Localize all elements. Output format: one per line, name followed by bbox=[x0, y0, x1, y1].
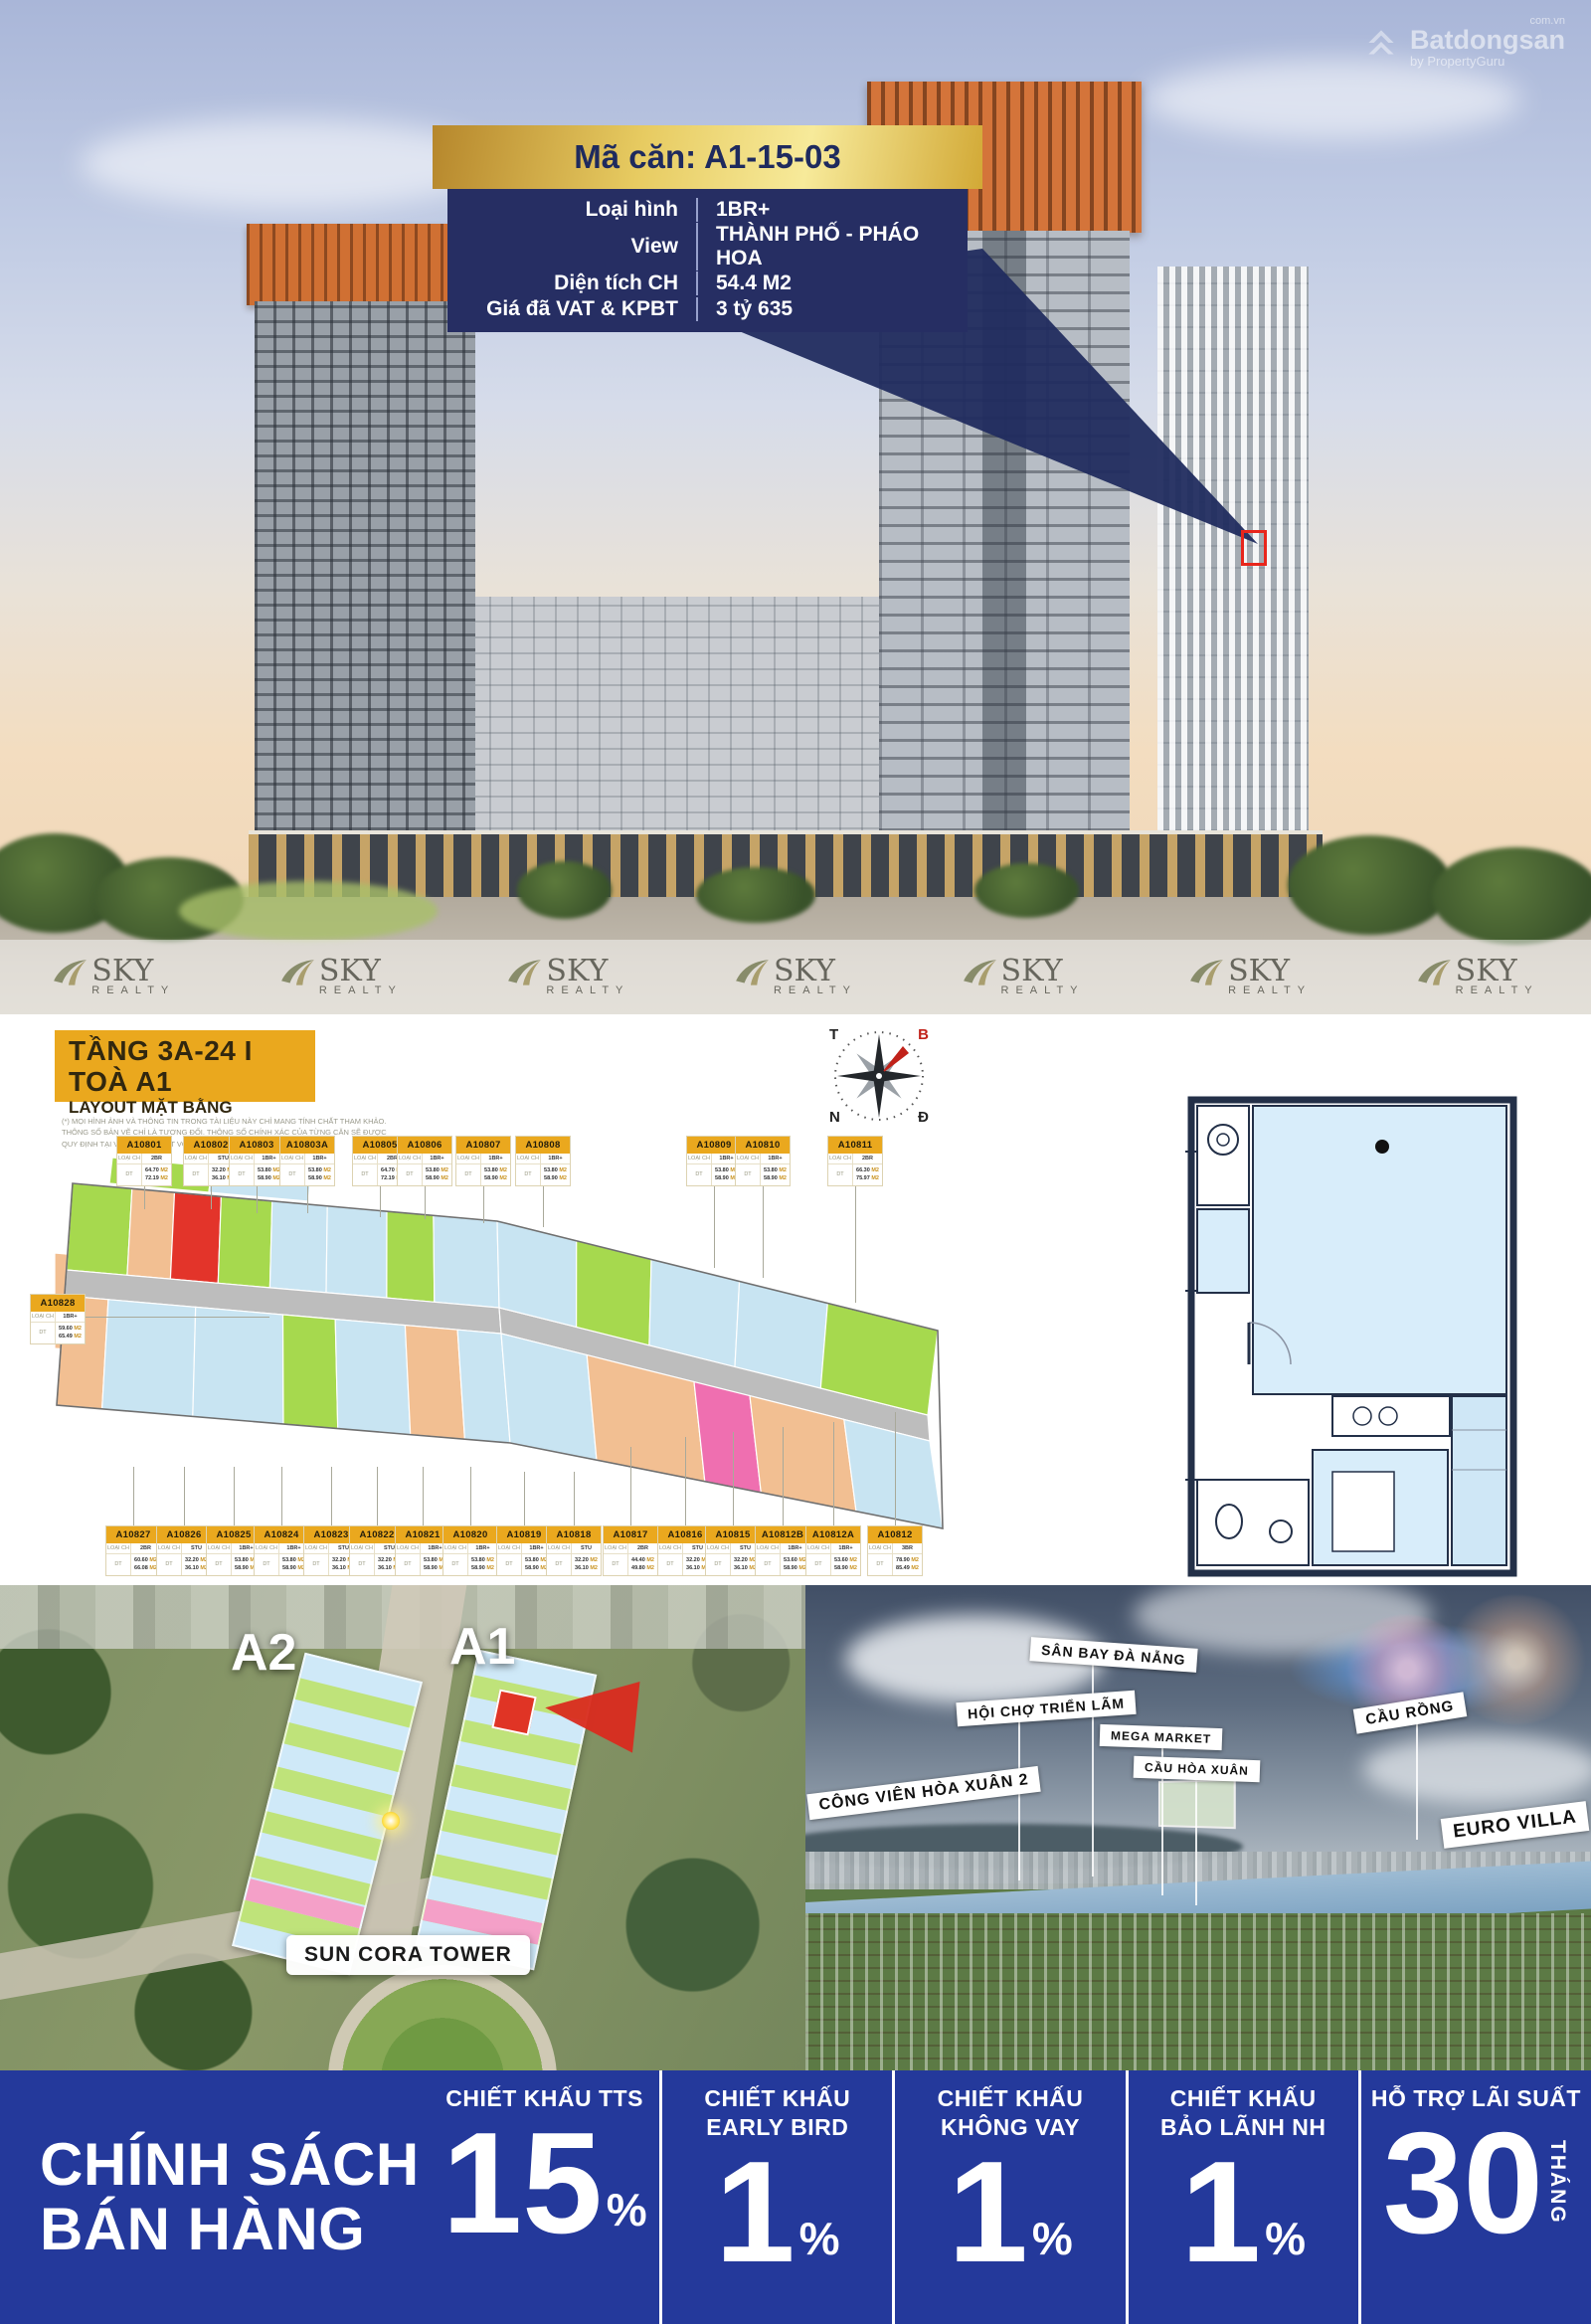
plan-unit bbox=[269, 1201, 327, 1293]
policy-value: 1% bbox=[948, 2136, 1073, 2287]
unit-card-row-value: THÀNH PHỐ - PHÁO HOA bbox=[696, 223, 968, 270]
policy-number: 1 bbox=[948, 2136, 1028, 2287]
cloud bbox=[1144, 60, 1521, 139]
hero-render: SKYREALTYSKYREALTYSKYREALTYSKYREALTYSKYR… bbox=[0, 0, 1591, 1014]
policy-number: 15 bbox=[442, 2107, 603, 2258]
unit-card-row: Loại hình1BR+ bbox=[447, 197, 968, 223]
unit-code: A10809 bbox=[687, 1137, 741, 1154]
policy-column: CHIẾT KHẤUKHÔNG VAY1% bbox=[892, 2070, 1125, 2324]
plan-unit bbox=[405, 1326, 464, 1440]
tree bbox=[517, 861, 612, 919]
sky-realty-name: SKY bbox=[91, 958, 175, 984]
sky-realty-wordmark: SKYREALTY bbox=[319, 958, 403, 996]
roundabout bbox=[328, 1965, 557, 2070]
siteplan-unit bbox=[246, 1878, 365, 1928]
block-a1-label: A1 bbox=[449, 1617, 515, 1677]
sky-realty-sub: REALTY bbox=[1456, 984, 1539, 996]
tree bbox=[1288, 835, 1452, 935]
sky-realty-sub: REALTY bbox=[774, 984, 857, 996]
sky-realty-sub: REALTY bbox=[546, 984, 629, 996]
unit-card-row-label: View bbox=[447, 235, 696, 259]
plan-unit bbox=[67, 1183, 132, 1275]
floorplan-title: TẦNG 3A-24 I TOÀ A1 bbox=[69, 1036, 301, 1098]
batdongsan-house-icon bbox=[1360, 22, 1402, 64]
sky-realty-logo: SKYREALTY bbox=[962, 958, 1085, 996]
unit-code: A10807 bbox=[456, 1137, 510, 1154]
plan-unit bbox=[57, 1296, 108, 1409]
plan-unit bbox=[387, 1211, 435, 1302]
unit-code: A10810 bbox=[736, 1137, 790, 1154]
sky-realty-sub: REALTY bbox=[1001, 984, 1085, 996]
policy-unit: % bbox=[799, 2212, 840, 2265]
unit-detail-floorplan bbox=[1183, 1092, 1521, 1581]
policy-label-line: CHIẾT KHẤU bbox=[704, 2084, 850, 2113]
site-location-map: A2 A1 SUN CORA TOWER bbox=[0, 1585, 805, 2070]
sky-realty-logo: SKYREALTY bbox=[52, 958, 175, 996]
palm-leaf-icon bbox=[1188, 958, 1224, 989]
sales-policy-banner: CHÍNH SÁCH BÁN HÀNG CHIẾT KHẤU TTS15%CHI… bbox=[0, 2070, 1591, 2324]
palm-leaf-icon bbox=[734, 958, 770, 989]
palm-leaf-icon bbox=[1416, 958, 1452, 989]
sky-realty-name: SKY bbox=[1228, 958, 1312, 984]
unit-card-row: Diện tích CH54.4 M2 bbox=[447, 270, 968, 296]
unit-area-label: DT bbox=[31, 1323, 56, 1343]
flyer-page: SKYREALTYSKYREALTYSKYREALTYSKYREALTYSKYR… bbox=[0, 0, 1591, 2324]
sky-realty-name: SKY bbox=[319, 958, 403, 984]
far-right-tower bbox=[1157, 267, 1309, 875]
compass-west: T bbox=[829, 1026, 838, 1043]
villa-district bbox=[805, 1913, 1591, 2070]
sky-realty-watermark-strip: SKYREALTYSKYREALTYSKYREALTYSKYREALTYSKYR… bbox=[0, 940, 1591, 1014]
sky-realty-sub: REALTY bbox=[1228, 984, 1312, 996]
policy-column: CHIẾT KHẤUBẢO LÃNH NH1% bbox=[1126, 2070, 1358, 2324]
cloud bbox=[1362, 1734, 1591, 1804]
policy-value: 1% bbox=[715, 2136, 840, 2287]
policy-unit: % bbox=[607, 2183, 647, 2236]
floorplan-subtitle: LAYOUT MẶT BẰNG bbox=[69, 1098, 301, 1118]
policy-column: HỖ TRỢ LÃI SUẤT30THÁNG bbox=[1358, 2070, 1591, 2324]
palm-leaf-icon bbox=[506, 958, 542, 989]
map-leader-line bbox=[1195, 1778, 1197, 1905]
unit-card-row-label: Diện tích CH bbox=[447, 271, 696, 295]
disclaimer-line: (*) MỌI HÌNH ẢNH VÀ THÔNG TIN TRONG TÀI … bbox=[62, 1116, 400, 1127]
unit-card-row: ViewTHÀNH PHỐ - PHÁO HOA bbox=[447, 223, 968, 270]
lawn bbox=[179, 881, 438, 941]
policy-label-line: CHIẾT KHẤU bbox=[1160, 2084, 1326, 2113]
policy-value: 30THÁNG bbox=[1383, 2107, 1569, 2258]
plan-unit bbox=[326, 1206, 387, 1298]
sky-realty-logo: SKYREALTY bbox=[1188, 958, 1312, 996]
tree bbox=[974, 863, 1079, 918]
policy-column: CHIẾT KHẤUEARLY BIRD1% bbox=[659, 2070, 892, 2324]
palm-leaf-icon bbox=[52, 958, 88, 989]
compass-rose: T B N Đ bbox=[827, 1024, 931, 1128]
plan-unit bbox=[109, 1158, 212, 1192]
compass-icon bbox=[827, 1024, 931, 1128]
disclaimer-line: QUY ĐỊNH TẠI VĂN BẢN KÝ KẾT VỚI KHÁCH HÀ… bbox=[62, 1139, 400, 1150]
policy-title-line: BÁN HÀNG bbox=[40, 2198, 430, 2262]
sky-realty-sub: REALTY bbox=[91, 984, 175, 996]
map-leader-line bbox=[1018, 1716, 1020, 1880]
sky-realty-wordmark: SKYREALTY bbox=[546, 958, 629, 996]
unit-type-label: LOẠI CH bbox=[31, 1312, 56, 1322]
plan-unit bbox=[209, 1166, 311, 1201]
plan-unit bbox=[127, 1188, 175, 1279]
plan-unit bbox=[434, 1215, 499, 1308]
unit-code: A10811 bbox=[828, 1137, 882, 1154]
palm-leaf-icon bbox=[279, 958, 315, 989]
sky-realty-wordmark: SKYREALTY bbox=[91, 958, 175, 996]
sky-realty-wordmark: SKYREALTY bbox=[774, 958, 857, 996]
tree bbox=[696, 867, 815, 923]
policy-value: 1% bbox=[1180, 2136, 1306, 2287]
maps-row: A2 A1 SUN CORA TOWER SÂN BAY ĐÀ NẴNGHỘI … bbox=[0, 1585, 1591, 2070]
unit-card-row-label: Giá đã VAT & KPBT bbox=[447, 297, 696, 321]
sky-realty-logo: SKYREALTY bbox=[506, 958, 629, 996]
sky-realty-logo: SKYREALTY bbox=[734, 958, 857, 996]
unit-card-row: Giá đã VAT & KPBT3 tỷ 635 bbox=[447, 296, 968, 322]
policy-unit: % bbox=[1265, 2212, 1306, 2265]
tree bbox=[1432, 847, 1591, 945]
policy-number: 30 bbox=[1383, 2107, 1543, 2258]
policy-title: CHÍNH SÁCH BÁN HÀNG bbox=[0, 2070, 430, 2324]
batdongsan-watermark: com.vn Batdongsan by PropertyGuru bbox=[1360, 16, 1565, 70]
policy-number: 1 bbox=[1180, 2136, 1261, 2287]
sky-realty-name: SKY bbox=[774, 958, 857, 984]
highlighted-unit-on-map bbox=[491, 1689, 536, 1735]
floor-layout-drawing bbox=[55, 1154, 955, 1576]
policy-unit: % bbox=[1032, 2212, 1073, 2265]
policy-number: 1 bbox=[715, 2136, 795, 2287]
policy-value: 15% bbox=[442, 2107, 647, 2258]
unit-info-card: Loại hình1BR+ViewTHÀNH PHỐ - PHÁO HOADiệ… bbox=[447, 189, 968, 332]
palm-leaf-icon bbox=[962, 958, 997, 989]
aerial-view-map: SÂN BAY ĐÀ NẴNGHỘI CHỢ TRIỂN LÃMMEGA MAR… bbox=[805, 1585, 1591, 2070]
policy-title-line: CHÍNH SÁCH bbox=[40, 2133, 430, 2198]
plan-unit bbox=[283, 1315, 338, 1429]
plan-unit bbox=[170, 1192, 221, 1283]
compass-north: B bbox=[918, 1026, 929, 1043]
disclaimer-line: THÔNG SỐ BẢN VẼ CHỈ LÀ TƯƠNG ĐỐI. THÔNG … bbox=[62, 1127, 400, 1138]
sky-realty-wordmark: SKYREALTY bbox=[1228, 958, 1312, 996]
plan-unit bbox=[218, 1196, 271, 1288]
unit-card-row-value: 3 tỷ 635 bbox=[696, 297, 968, 321]
floorplan-section: TẦNG 3A-24 I TOÀ A1 LAYOUT MẶT BẰNG (*) … bbox=[0, 1014, 1591, 1585]
compass-south: N bbox=[829, 1109, 840, 1126]
unit-card-row-value: 54.4 M2 bbox=[696, 271, 968, 295]
policy-label-line: CHIẾT KHẤU bbox=[938, 2084, 1084, 2113]
unit-code: A10808 bbox=[516, 1137, 570, 1154]
plan-unit bbox=[335, 1320, 411, 1435]
block-a2-label: A2 bbox=[231, 1623, 296, 1683]
floorplan-disclaimer: (*) MỌI HÌNH ẢNH VÀ THÔNG TIN TRONG TÀI … bbox=[62, 1116, 400, 1150]
unit-card-title: Mã căn: A1-15-03 bbox=[433, 125, 982, 189]
policy-unit: THÁNG bbox=[1545, 2140, 1569, 2225]
floorplan-title-box: TẦNG 3A-24 I TOÀ A1 LAYOUT MẶT BẰNG bbox=[55, 1030, 315, 1102]
sky-realty-logo: SKYREALTY bbox=[1416, 958, 1539, 996]
compass-east: Đ bbox=[918, 1109, 929, 1126]
sky-realty-name: SKY bbox=[1001, 958, 1085, 984]
left-tower bbox=[255, 301, 475, 830]
sky-realty-name: SKY bbox=[546, 958, 629, 984]
red-arrow-pointer bbox=[541, 1672, 639, 1752]
sky-realty-name: SKY bbox=[1456, 958, 1539, 984]
location-dot bbox=[382, 1812, 400, 1830]
sky-realty-logo: SKYREALTY bbox=[279, 958, 403, 996]
map-label: CẦU HÒA XUÂN bbox=[1134, 1756, 1261, 1782]
sky-realty-wordmark: SKYREALTY bbox=[1456, 958, 1539, 996]
map-label: MEGA MARKET bbox=[1100, 1724, 1223, 1750]
background-building bbox=[467, 597, 885, 845]
map-leader-line bbox=[1416, 1720, 1418, 1840]
unit-code: A10806 bbox=[398, 1137, 451, 1154]
unit-card-row-value: 1BR+ bbox=[696, 198, 968, 222]
plan-unit bbox=[102, 1300, 196, 1417]
sky-realty-sub: REALTY bbox=[319, 984, 403, 996]
unit-card-row-label: Loại hình bbox=[447, 198, 696, 222]
policy-column: CHIẾT KHẤU TTS15% bbox=[430, 2070, 659, 2324]
sky-realty-wordmark: SKYREALTY bbox=[1001, 958, 1085, 996]
highlighted-unit-marker bbox=[1241, 530, 1267, 566]
plan-unit bbox=[193, 1307, 283, 1424]
sun-cora-tower-label: SUN CORA TOWER bbox=[286, 1935, 530, 1975]
watermark-byline: by PropertyGuru bbox=[1410, 54, 1565, 70]
watermark-brand: Batdongsan bbox=[1410, 27, 1565, 54]
